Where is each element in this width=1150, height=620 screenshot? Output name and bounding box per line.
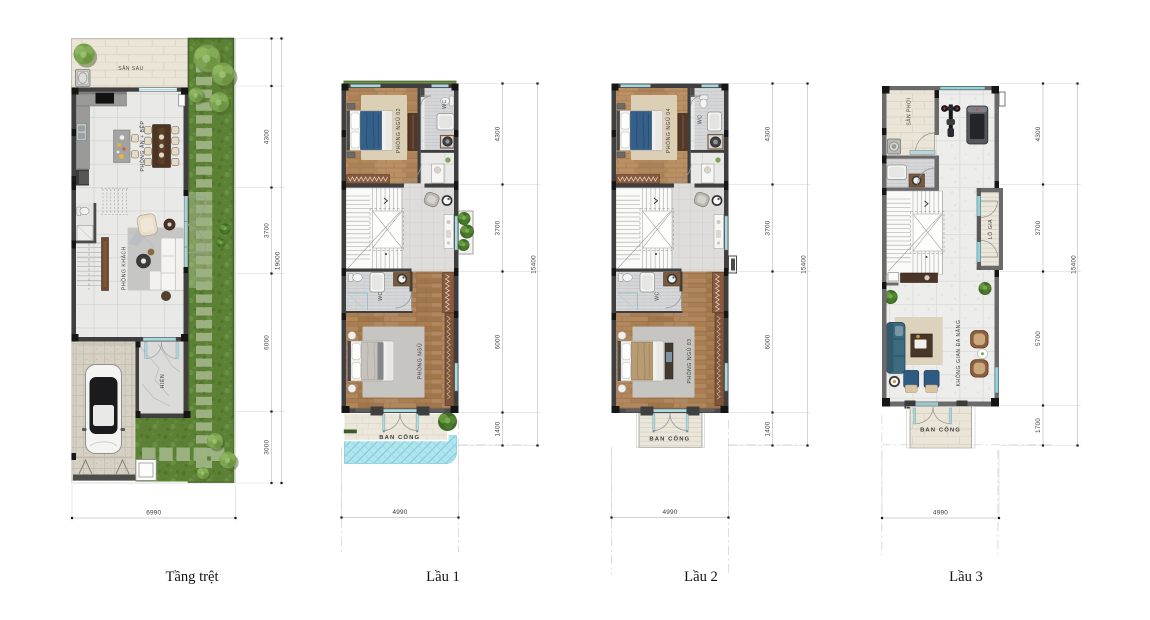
svg-text:PHÒNG NGỦ 02: PHÒNG NGỦ 02 — [395, 108, 402, 153]
svg-text:WC: WC — [655, 291, 661, 301]
svg-text:WC: WC — [698, 115, 704, 125]
svg-text:BAN CÔNG: BAN CÔNG — [379, 433, 420, 441]
svg-text:WC: WC — [378, 291, 384, 301]
svg-text:HIÊN: HIÊN — [158, 374, 166, 388]
svg-text:1400: 1400 — [765, 421, 772, 436]
svg-text:1400: 1400 — [495, 421, 502, 436]
svg-text:PHÒNG KHÁCH: PHÒNG KHÁCH — [121, 246, 128, 290]
svg-text:4300: 4300 — [264, 129, 271, 144]
svg-text:5700: 5700 — [1035, 331, 1042, 346]
svg-text:SÂN SAU: SÂN SAU — [118, 65, 143, 72]
svg-text:15400: 15400 — [530, 255, 537, 274]
svg-text:6990: 6990 — [146, 510, 161, 517]
svg-text:4990: 4990 — [933, 510, 948, 517]
svg-text:Lầu 1: Lầu 1 — [426, 569, 460, 585]
svg-text:15400: 15400 — [1070, 255, 1077, 274]
svg-text:3700: 3700 — [495, 220, 502, 235]
svg-text:4300: 4300 — [765, 126, 772, 141]
svg-text:PHÒNG NGỦ: PHÒNG NGỦ — [417, 343, 424, 379]
svg-text:19000: 19000 — [274, 251, 281, 270]
svg-text:3700: 3700 — [264, 223, 271, 238]
svg-text:SÂN PHƠI: SÂN PHƠI — [905, 97, 912, 125]
svg-text:WC: WC — [442, 99, 448, 109]
svg-text:6000: 6000 — [264, 335, 271, 350]
svg-text:3000: 3000 — [264, 440, 271, 455]
svg-text:BAN CÔNG: BAN CÔNG — [920, 426, 961, 434]
svg-text:6000: 6000 — [765, 334, 772, 349]
svg-text:Lầu 2: Lầu 2 — [684, 569, 718, 585]
svg-text:15400: 15400 — [800, 255, 807, 274]
svg-text:3700: 3700 — [1035, 220, 1042, 235]
svg-text:4990: 4990 — [392, 509, 407, 516]
svg-text:4990: 4990 — [662, 509, 677, 516]
svg-text:4300: 4300 — [1035, 126, 1042, 141]
svg-text:Lầu 3: Lầu 3 — [949, 569, 983, 585]
svg-text:Tầng trệt: Tầng trệt — [165, 569, 218, 585]
svg-text:3700: 3700 — [765, 220, 772, 235]
svg-text:PHÒNG ĂN + BẾP: PHÒNG ĂN + BẾP — [139, 121, 146, 172]
svg-text:PHÒNG NGỦ 03: PHÒNG NGỦ 03 — [686, 338, 693, 383]
svg-text:PHÒNG NGỦ 04: PHÒNG NGỦ 04 — [665, 108, 672, 153]
svg-text:1700: 1700 — [1035, 418, 1042, 433]
svg-text:KHÔNG GIAN ĐA NĂNG: KHÔNG GIAN ĐA NĂNG — [955, 320, 962, 387]
svg-text:BAN CÔNG: BAN CÔNG — [649, 435, 690, 443]
svg-text:6000: 6000 — [495, 334, 502, 349]
svg-text:LÔ GIA: LÔ GIA — [987, 219, 994, 239]
svg-text:4300: 4300 — [495, 126, 502, 141]
